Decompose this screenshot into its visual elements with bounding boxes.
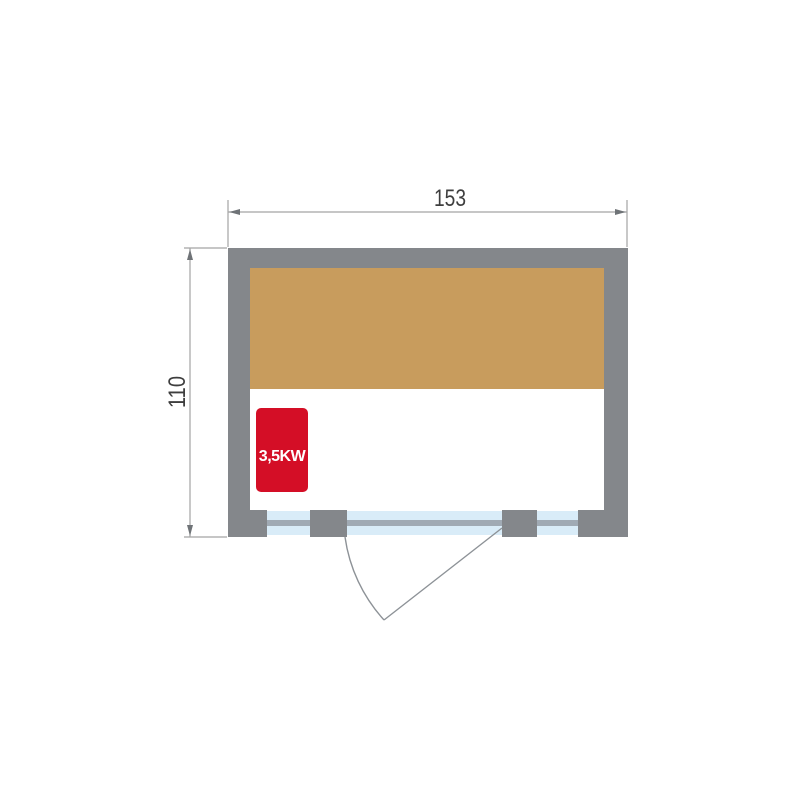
wall-right	[604, 248, 628, 537]
corner-block-bottom-right	[578, 510, 628, 537]
height-dimension-label: 110	[164, 376, 191, 408]
door-swing-arc	[345, 537, 384, 620]
height-arrow-bottom-icon	[187, 525, 193, 536]
width-dimension-label: 153	[434, 185, 466, 212]
annotation-overlay: 153 110	[0, 0, 800, 800]
corner-block-bottom-left	[228, 510, 267, 537]
door-swing	[345, 528, 502, 620]
wall-left	[228, 248, 250, 537]
door-track-line	[250, 520, 604, 526]
door-leaf-line	[384, 528, 502, 620]
height-arrow-top-icon	[187, 249, 193, 260]
door-post-left	[310, 510, 347, 537]
height-dimension	[184, 248, 227, 537]
heater-block: 3,5KW	[256, 408, 308, 492]
heater-power-label: 3,5KW	[259, 448, 305, 466]
door-post-right	[502, 510, 537, 537]
width-dimension	[228, 200, 627, 247]
bench-top	[250, 268, 605, 389]
width-arrow-left-icon	[229, 209, 240, 215]
sauna-floor-plan-diagram: 3,5KW 153 110	[0, 0, 800, 800]
width-arrow-right-icon	[615, 209, 626, 215]
wall-top	[228, 248, 628, 268]
